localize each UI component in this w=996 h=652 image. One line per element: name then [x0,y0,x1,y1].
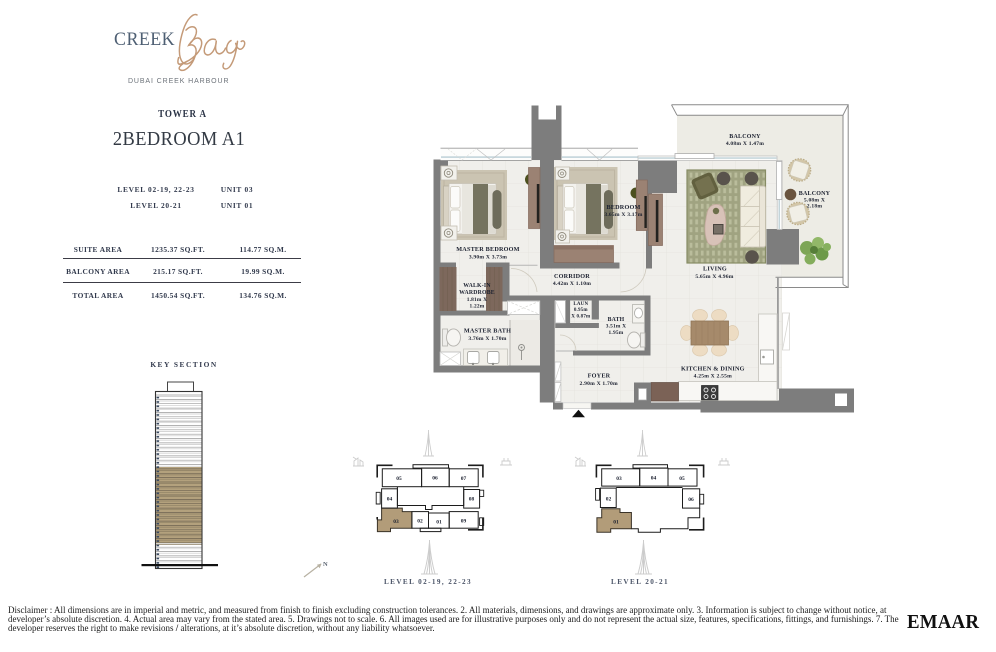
svg-text:MASTER BATH: MASTER BATH [464,328,511,335]
svg-text:KITCHEN & DINING: KITCHEN & DINING [681,366,745,373]
svg-text:3.65m X 3.17m: 3.65m X 3.17m [604,212,642,218]
svg-text:01: 01 [436,520,442,526]
svg-text:BALCONY: BALCONY [729,134,761,140]
svg-text:BALCONY: BALCONY [799,191,831,197]
svg-text:03: 03 [393,519,399,525]
svg-text:06: 06 [432,476,438,482]
svg-text:LIVING: LIVING [703,266,727,273]
svg-text:09: 09 [461,519,467,525]
svg-text:BATH: BATH [608,317,625,323]
svg-text:3.51m X: 3.51m X [606,324,627,330]
svg-text:N: N [323,561,328,568]
svg-text:WARDROBE: WARDROBE [459,290,495,296]
svg-text:CREEK: CREEK [114,28,175,50]
svg-text:03: 03 [616,476,622,482]
svg-text:2.90m X 1.70m: 2.90m X 1.70m [580,381,618,387]
svg-text:BEDROOM: BEDROOM [606,204,640,211]
svg-text:1.95m: 1.95m [609,330,624,336]
svg-text:06: 06 [688,497,694,503]
svg-text:DUBAI CREEK HARBOUR: DUBAI CREEK HARBOUR [128,78,230,85]
svg-text:3.76m X 1.70m: 3.76m X 1.70m [468,336,506,342]
svg-text:2.18m: 2.18m [807,204,823,210]
svg-text:WALK-IN: WALK-IN [463,283,491,289]
svg-text:MASTER BEDROOM: MASTER BEDROOM [456,246,519,253]
svg-text:05: 05 [396,476,402,482]
svg-text:04: 04 [387,497,393,503]
svg-text:1.81m X: 1.81m X [467,297,488,303]
svg-text:3.90m X 3.73m: 3.90m X 3.73m [469,254,507,260]
svg-text:4.08m X 1.47m: 4.08m X 1.47m [726,141,764,147]
svg-text:1.22m: 1.22m [470,304,485,310]
svg-text:02: 02 [417,519,423,525]
svg-text:07: 07 [461,476,467,482]
svg-text:CORRIDOR: CORRIDOR [554,273,590,280]
svg-text:01: 01 [613,520,619,526]
svg-text:LAUN: LAUN [573,302,588,307]
svg-text:4.42m X 1.10m: 4.42m X 1.10m [553,281,591,287]
svg-text:X 0.87m: X 0.87m [571,314,591,319]
svg-text:08: 08 [469,497,475,503]
svg-text:0.95m: 0.95m [574,308,589,313]
svg-text:5.08m X: 5.08m X [804,197,825,203]
svg-text:4.25m X 2.55m: 4.25m X 2.55m [694,374,732,380]
svg-text:02: 02 [606,497,612,503]
svg-text:04: 04 [651,476,657,482]
svg-text:5.65m X 4.96m: 5.65m X 4.96m [695,274,733,280]
svg-text:FOYER: FOYER [588,373,611,380]
svg-text:05: 05 [679,476,685,482]
